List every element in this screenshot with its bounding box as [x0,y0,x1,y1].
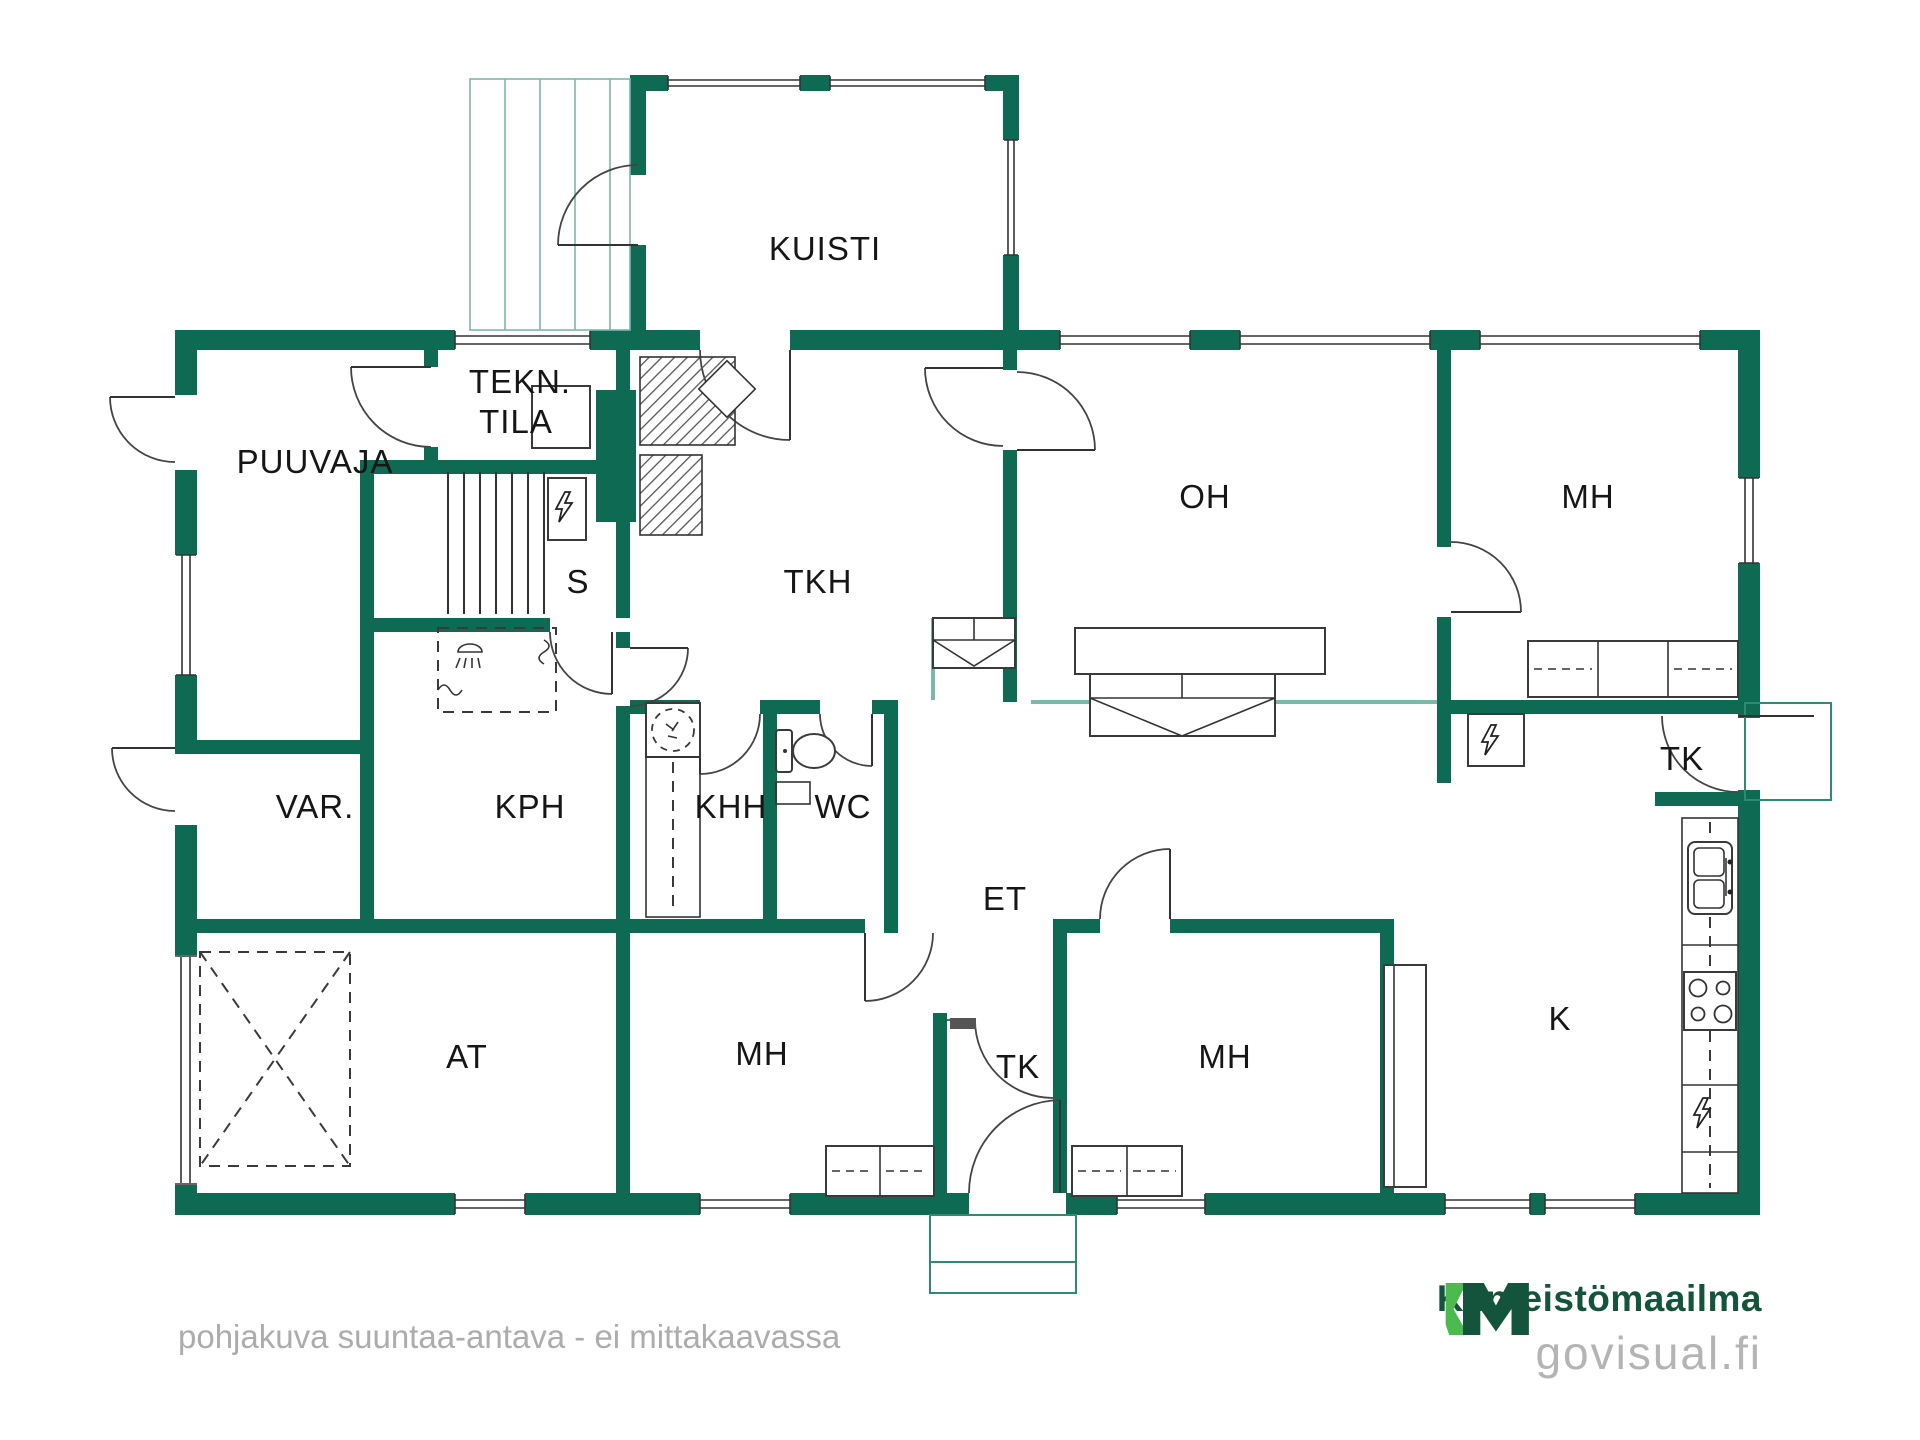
door-puuvaja-exterior [110,397,175,462]
room-label-k: K [1548,1000,1571,1037]
door-tekn-tila [351,367,431,447]
room-label-tekn-2: TILA [479,403,553,440]
window-right-mh [1739,478,1759,563]
tk-closet-shelf [950,1018,976,1029]
lightning-icon [1694,1098,1710,1128]
window-kuisti-right [1004,140,1018,255]
window-top-tekn [455,331,590,349]
washing-machine [646,703,700,917]
room-label-kuisti: KUISTI [769,230,881,267]
kitchen-tall-cabinet [1384,965,1426,1187]
room-label-puuvaja: PUUVAJA [237,443,394,480]
sauna-heater [548,478,586,540]
window-kuisti-top-1 [668,76,800,90]
sauna-benches [448,472,544,614]
door-mh-bottom-left [865,933,933,1001]
room-label-tkh: TKH [784,563,853,600]
room-label-tk-closet: TK [996,1048,1040,1085]
floor-plan-drawing: KUISTI TEKN. TILA PUUVAJA OH MH S TKH VA… [0,0,1920,1440]
room-label-tk-entry: TK [1660,740,1704,777]
sink-icon [1688,842,1733,914]
disclaimer-text: pohjakuva suuntaa-antava - ei mittakaava… [178,1318,840,1356]
window-left-puuvaja [176,555,196,675]
kitchen-appliance-electric [1694,1098,1710,1128]
door-var-exterior [112,748,175,811]
mh-bottom-right-wardrobe [1072,1146,1182,1196]
room-label-wc: WC [815,788,872,825]
shower [438,628,556,712]
window-top-mh [1480,331,1700,349]
room-label-kph: KPH [495,788,566,825]
garage-car-place [175,952,350,1184]
door-et-exterior [969,1100,1060,1193]
kuisti-deck [470,79,630,330]
door-khh [700,714,760,774]
kitchen-counter [1682,818,1738,1193]
room-label-oh: OH [1179,478,1231,515]
door-kuisti-exterior [558,165,638,245]
stove-icon [1684,972,1736,1030]
window-kuisti-top-2 [830,76,985,90]
shower-head-icon [456,644,482,668]
door-mh-bottom-right [1100,849,1170,919]
km-logo-icon [1437,1278,1541,1340]
room-label-mh-top-right: MH [1561,478,1614,515]
room-label-at: AT [446,1038,488,1075]
window-top-oh-1 [1060,331,1190,349]
room-label-mh-bottom-left: MH [735,1035,788,1072]
door-tkh-oh-left [925,368,1003,446]
room-label-tekn-1: TEKN. [469,363,571,400]
window-top-oh-2 [1240,331,1430,349]
window-bottom-k-1 [1445,1194,1530,1214]
mh-top-right-wardrobe [1528,641,1738,697]
room-label-khh: KHH [695,788,768,825]
branding-block: Kiinteistömaailma govisual.fi [1437,1278,1762,1380]
mh-bottom-left-wardrobe [826,1146,934,1196]
tkh-closet [933,618,1015,668]
door-kph [630,648,688,706]
oh-sofa [1075,628,1325,674]
window-bottom-k-2 [1545,1194,1635,1214]
room-label-mh-bottom-right: MH [1198,1038,1251,1075]
door-tkh-oh-right [1017,372,1095,450]
electrical-panel [1468,714,1524,766]
door-mh-top-right [1451,542,1521,612]
room-label-sauna: S [566,563,589,600]
entry-porch-bottom [930,1215,1076,1293]
room-label-et: ET [983,880,1027,917]
window-bottom-mh-left [700,1194,790,1214]
oh-fireplace-bench [1090,674,1275,736]
floor-plan-page: KUISTI TEKN. TILA PUUVAJA OH MH S TKH VA… [0,0,1920,1440]
room-label-var: VAR. [276,788,355,825]
window-bottom-at [455,1194,525,1214]
door-sauna [550,632,612,694]
